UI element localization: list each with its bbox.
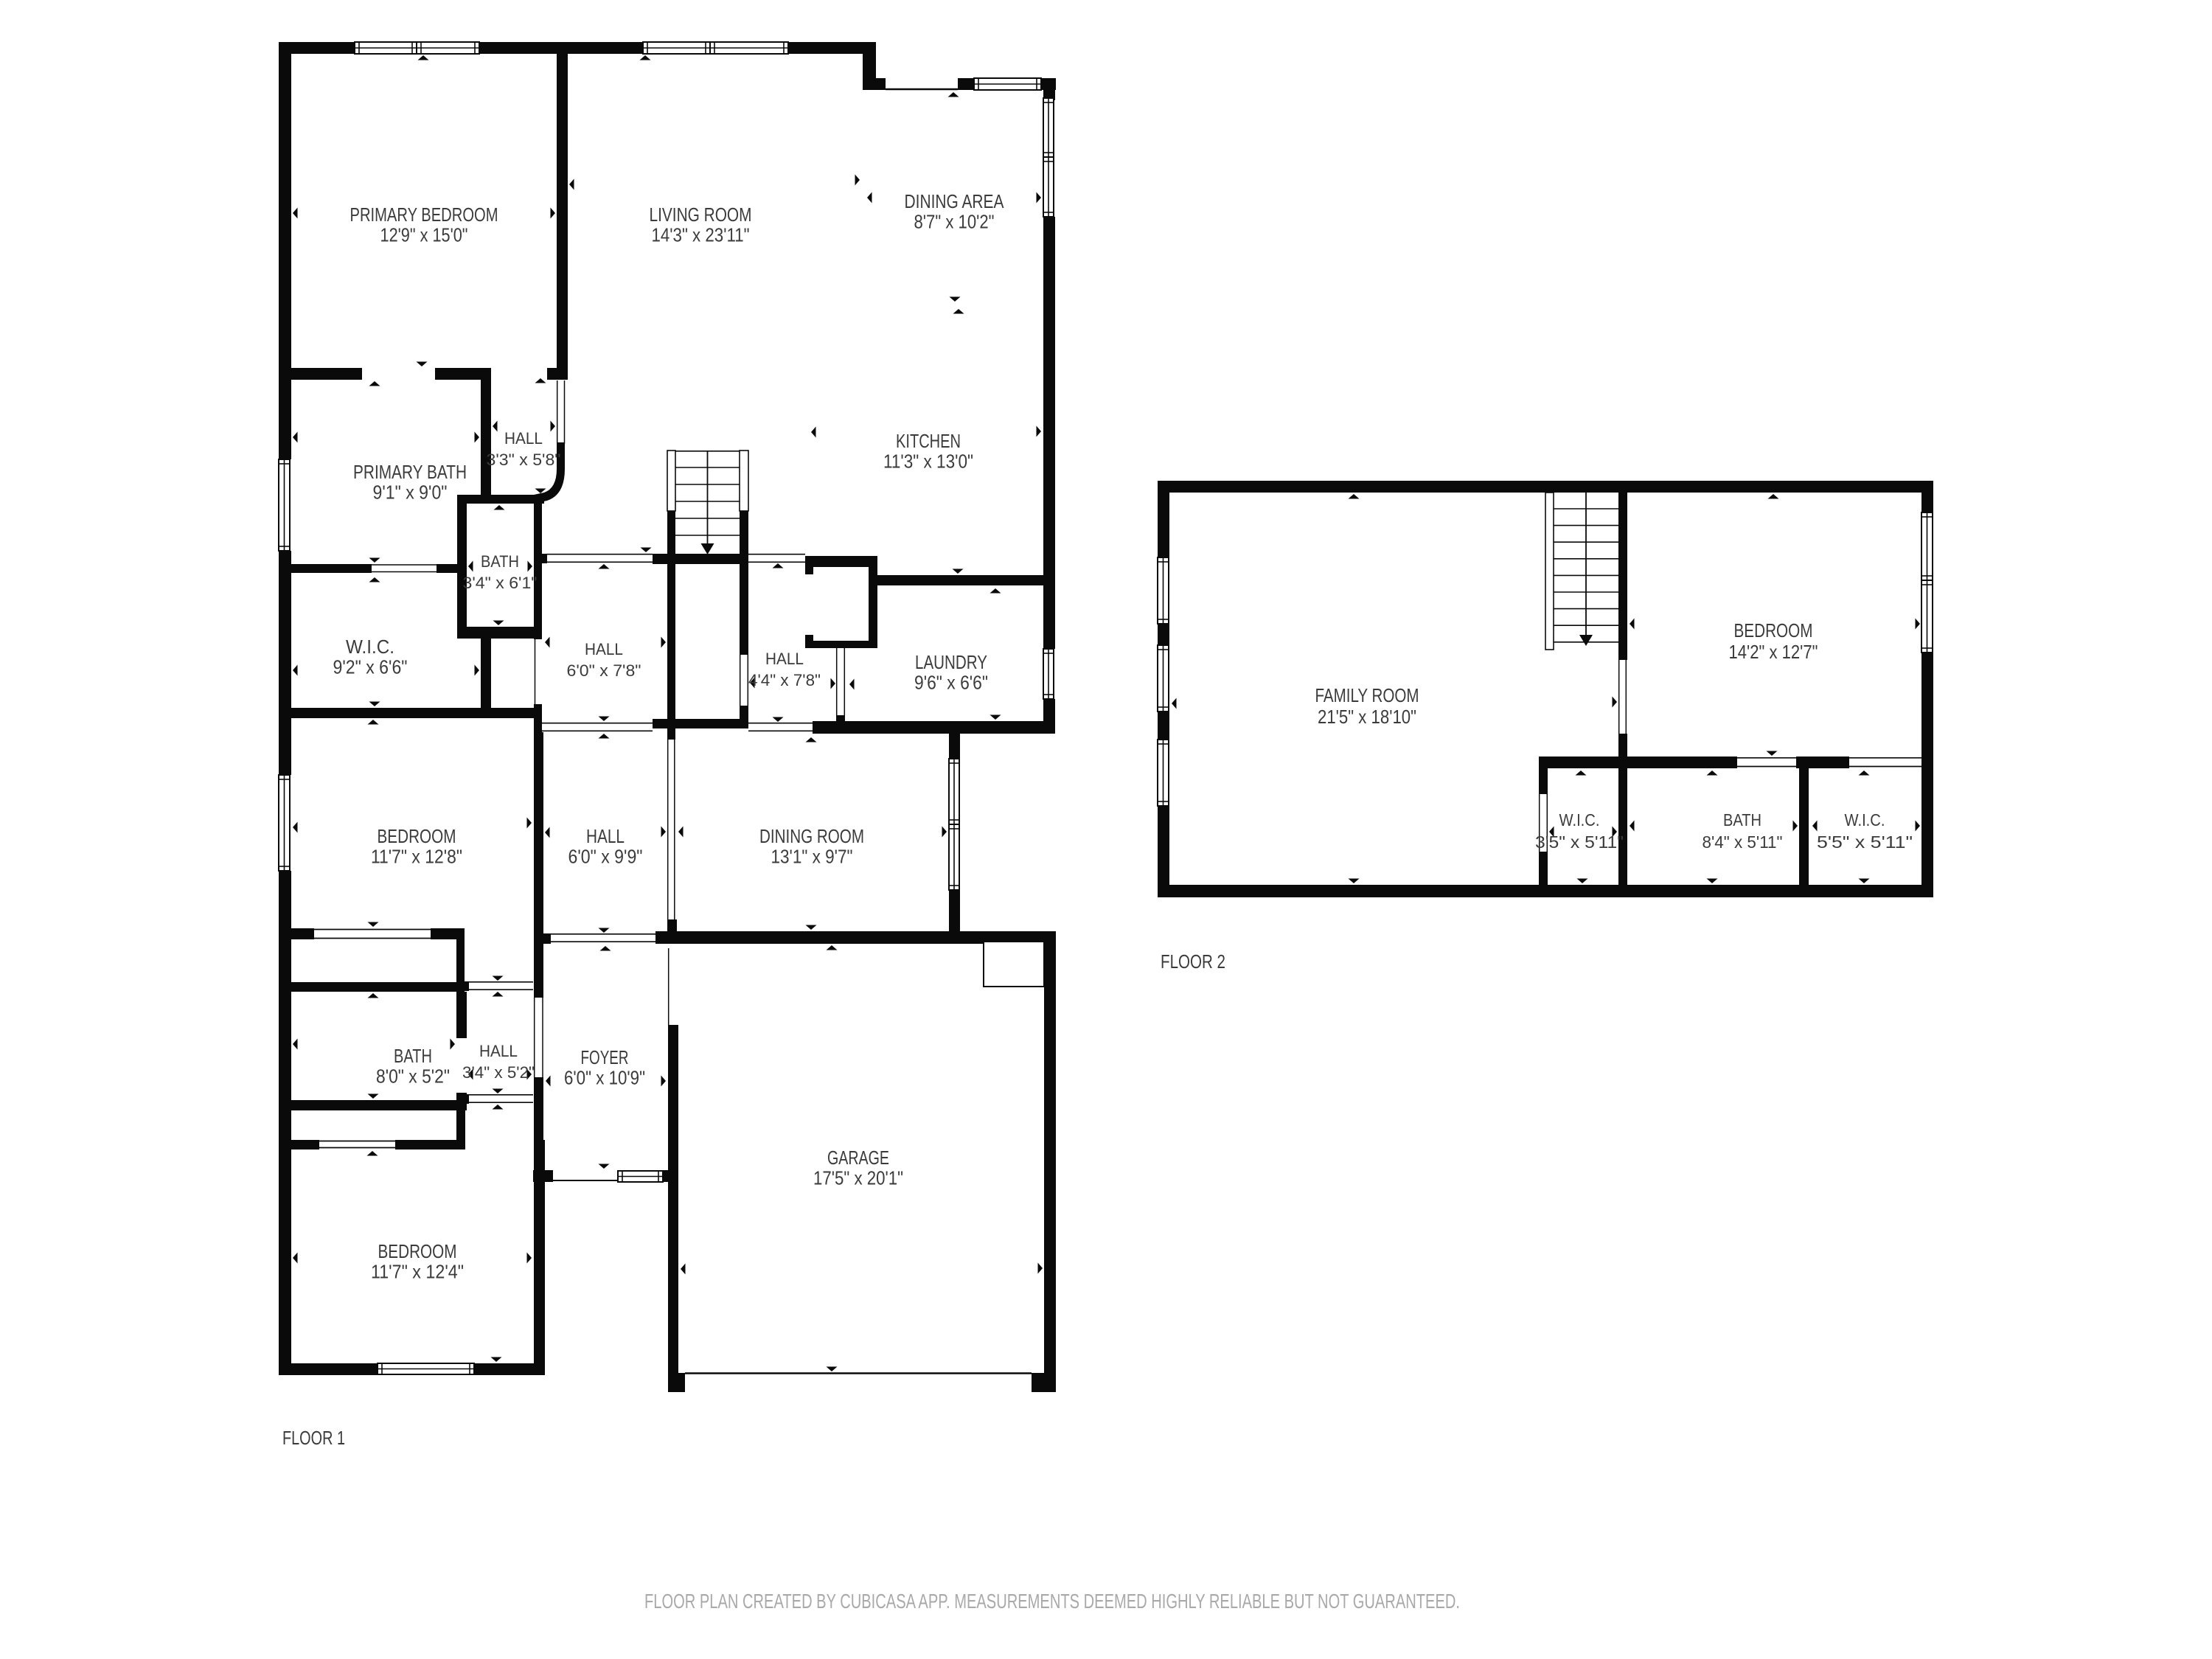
svg-text:8'4" x 5'11": 8'4" x 5'11" <box>1703 832 1783 852</box>
svg-text:PRIMARY BEDROOM: PRIMARY BEDROOM <box>350 204 498 226</box>
svg-text:HALL: HALL <box>504 429 543 448</box>
svg-text:BATH: BATH <box>394 1045 432 1067</box>
svg-text:W.I.C.: W.I.C. <box>346 636 394 658</box>
svg-text:DINING AREA: DINING AREA <box>905 190 1005 212</box>
svg-text:9'6" x 6'6": 9'6" x 6'6" <box>914 672 988 694</box>
svg-text:12'9" x 15'0": 12'9" x 15'0" <box>380 224 468 246</box>
svg-text:14'2" x 12'7": 14'2" x 12'7" <box>1729 641 1818 663</box>
svg-text:GARAGE: GARAGE <box>827 1147 889 1169</box>
svg-text:DINING ROOM: DINING ROOM <box>759 825 864 847</box>
svg-text:HALL: HALL <box>765 650 804 668</box>
svg-text:8'0" x 5'2": 8'0" x 5'2" <box>376 1065 450 1088</box>
svg-text:9'1" x 9'0": 9'1" x 9'0" <box>373 481 448 504</box>
svg-text:HALL: HALL <box>585 640 623 658</box>
svg-text:W.I.C.: W.I.C. <box>1559 810 1600 829</box>
svg-text:FOYER: FOYER <box>581 1046 629 1068</box>
svg-text:21'5" x 18'10": 21'5" x 18'10" <box>1318 706 1416 728</box>
svg-text:FLOOR 2: FLOOR 2 <box>1161 950 1225 973</box>
svg-text:BEDROOM: BEDROOM <box>378 825 456 847</box>
svg-text:BATH: BATH <box>481 552 519 571</box>
svg-text:14'3" x 23'11": 14'3" x 23'11" <box>652 224 750 246</box>
svg-text:13'1" x 9'7": 13'1" x 9'7" <box>771 846 853 868</box>
svg-text:BEDROOM: BEDROOM <box>1734 619 1813 641</box>
svg-text:9'2" x 6'6": 9'2" x 6'6" <box>333 656 408 678</box>
svg-text:FLOOR 1: FLOOR 1 <box>282 1427 345 1449</box>
svg-text:3'3" x 5'8": 3'3" x 5'8" <box>487 451 561 469</box>
svg-text:17'5" x 20'1": 17'5" x 20'1" <box>813 1167 903 1189</box>
svg-text:BEDROOM: BEDROOM <box>378 1240 457 1262</box>
svg-text:W.I.C.: W.I.C. <box>1845 810 1885 829</box>
svg-text:5'5" x 5'11": 5'5" x 5'11" <box>1817 832 1913 852</box>
svg-text:KITCHEN: KITCHEN <box>896 430 961 452</box>
svg-text:LIVING ROOM: LIVING ROOM <box>650 204 752 226</box>
svg-text:BATH: BATH <box>1723 810 1761 829</box>
svg-text:LAUNDRY: LAUNDRY <box>915 651 987 673</box>
svg-text:11'7" x 12'4": 11'7" x 12'4" <box>371 1261 464 1283</box>
svg-text:HALL: HALL <box>479 1042 518 1060</box>
svg-text:FAMILY ROOM: FAMILY ROOM <box>1315 684 1419 706</box>
svg-text:6'0" x 10'9": 6'0" x 10'9" <box>564 1067 645 1089</box>
svg-text:FLOOR PLAN CREATED BY CUBICASA: FLOOR PLAN CREATED BY CUBICASA APP. MEAS… <box>644 1590 1460 1613</box>
svg-text:3'4" x 5'2": 3'4" x 5'2" <box>462 1063 535 1082</box>
svg-text:HALL: HALL <box>586 825 625 847</box>
svg-text:6'0" x 7'8": 6'0" x 7'8" <box>567 661 641 680</box>
svg-text:4'4" x 7'8": 4'4" x 7'8" <box>748 671 821 689</box>
svg-text:3'5" x 5'11": 3'5" x 5'11" <box>1535 832 1624 852</box>
svg-text:6'0" x 9'9": 6'0" x 9'9" <box>568 846 643 868</box>
svg-text:8'7" x 10'2": 8'7" x 10'2" <box>914 211 995 233</box>
svg-text:3'4" x 6'1": 3'4" x 6'1" <box>463 574 538 592</box>
svg-text:PRIMARY BATH: PRIMARY BATH <box>353 461 467 483</box>
svg-text:11'3" x 13'0": 11'3" x 13'0" <box>883 451 973 473</box>
svg-text:11'7" x 12'8": 11'7" x 12'8" <box>371 846 462 868</box>
